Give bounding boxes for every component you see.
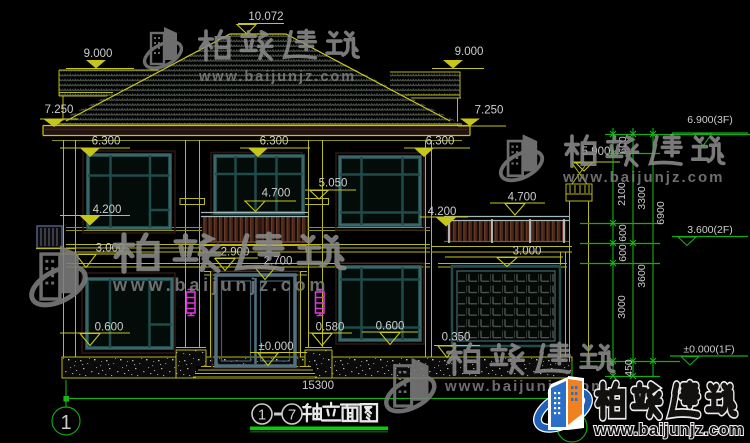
svg-text:6.900(3F): 6.900(3F) (687, 114, 733, 126)
svg-text:www.baijunjz.com: www.baijunjz.com (198, 69, 356, 85)
svg-text:600: 600 (617, 244, 629, 262)
svg-text:5.050: 5.050 (319, 178, 348, 190)
svg-text:6.300: 6.300 (92, 136, 121, 148)
svg-text:0.580: 0.580 (316, 322, 345, 334)
svg-text:10.072: 10.072 (248, 11, 283, 23)
svg-text:±0.000: ±0.000 (258, 341, 293, 353)
svg-text:0.600: 0.600 (95, 322, 124, 334)
svg-text:9.000: 9.000 (455, 46, 484, 58)
svg-text:15300: 15300 (302, 380, 334, 392)
svg-text:3.600(2F): 3.600(2F) (687, 224, 733, 236)
svg-text:www.baijunjz.com: www.baijunjz.com (562, 169, 724, 186)
svg-text:7.250: 7.250 (45, 104, 74, 116)
svg-text:6900: 6900 (655, 201, 667, 225)
svg-text:4.700: 4.700 (508, 192, 537, 204)
svg-text:3.000: 3.000 (513, 246, 542, 258)
svg-text:6.300: 6.300 (260, 136, 289, 148)
svg-text:±0.000(1F): ±0.000(1F) (683, 344, 734, 356)
svg-text:7: 7 (288, 407, 296, 424)
svg-text:6.300: 6.300 (426, 136, 455, 148)
svg-text:7.250: 7.250 (475, 105, 504, 117)
svg-text:3000: 3000 (616, 295, 628, 319)
svg-text:www.baijunjz.com: www.baijunjz.com (112, 275, 329, 295)
svg-text:3600: 3600 (636, 264, 648, 288)
svg-text:450: 450 (623, 359, 635, 377)
svg-text:4.200: 4.200 (428, 206, 457, 218)
svg-text:1: 1 (60, 412, 71, 434)
svg-text:600: 600 (617, 224, 629, 242)
svg-text:0.350: 0.350 (442, 332, 471, 344)
svg-text:4.200: 4.200 (93, 204, 122, 216)
svg-text:0.600: 0.600 (376, 321, 405, 333)
svg-text:www.baijunjz.com: www.baijunjz.com (593, 421, 744, 439)
svg-text:1: 1 (258, 407, 266, 424)
svg-text:4.700: 4.700 (262, 188, 291, 200)
svg-text:3300: 3300 (636, 186, 648, 210)
svg-text:9.000: 9.000 (84, 48, 113, 60)
